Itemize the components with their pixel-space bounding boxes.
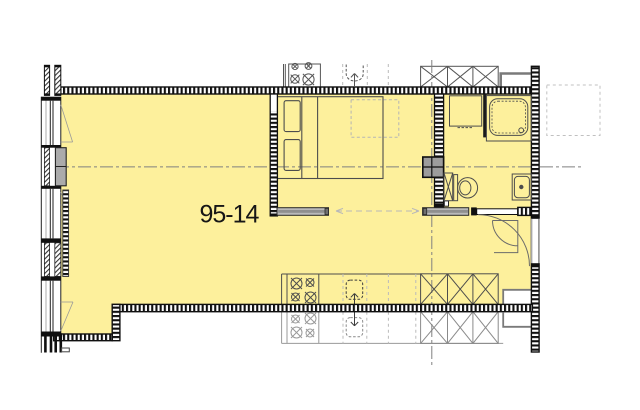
svg-text:95-14: 95-14	[200, 201, 260, 229]
